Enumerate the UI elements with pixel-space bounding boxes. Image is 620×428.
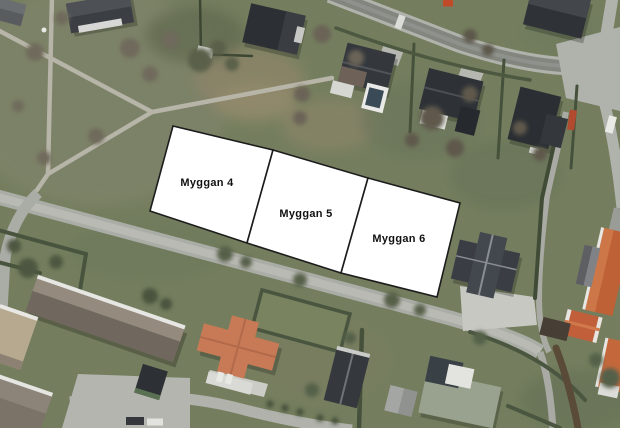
aerial-photo (0, 0, 620, 428)
shed-roof (384, 385, 417, 417)
car (126, 417, 144, 425)
aerial-plot-map: Myggan 4 Myggan 5 Myggan 6 (0, 0, 620, 428)
building-roof (0, 372, 53, 428)
car (147, 419, 163, 426)
building-roof (24, 275, 189, 368)
building-roof (449, 228, 526, 303)
car (443, 0, 453, 7)
building-roof (417, 356, 507, 428)
